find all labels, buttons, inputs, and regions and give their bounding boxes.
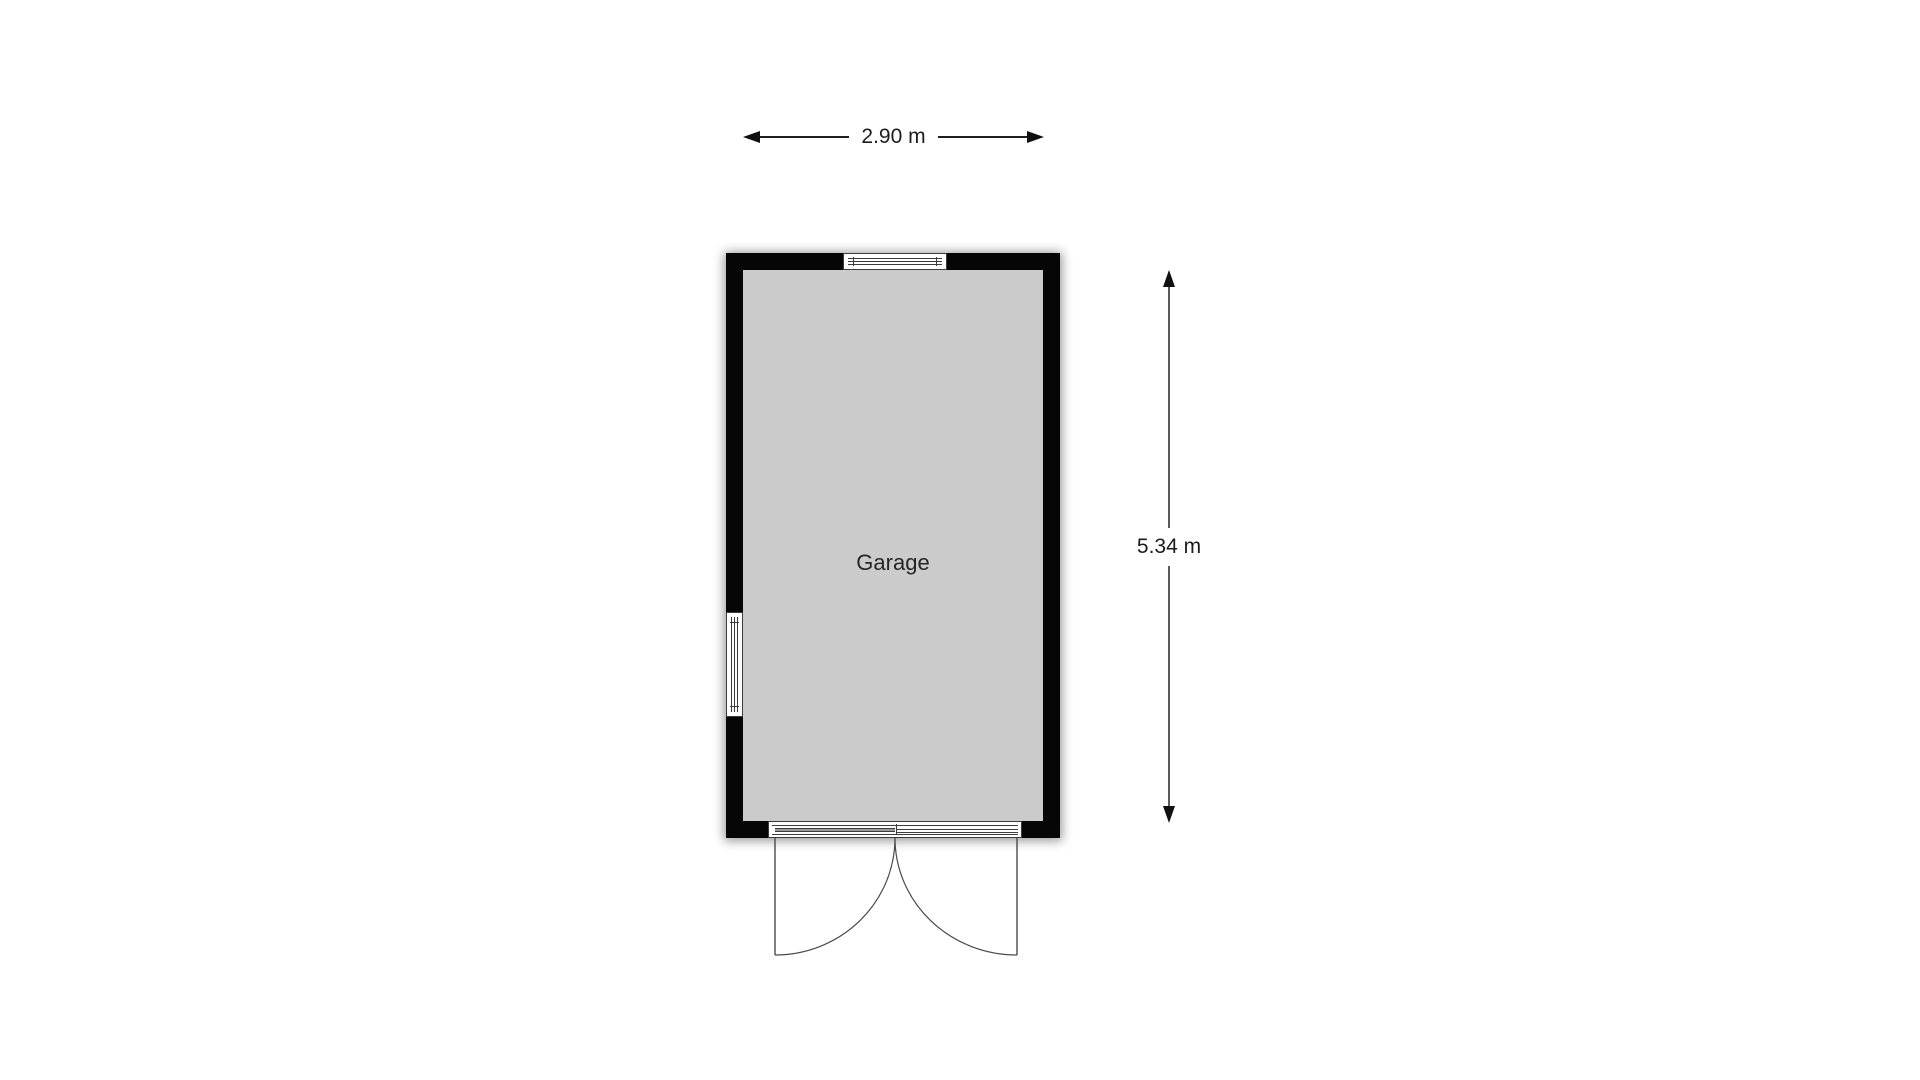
dimension-height: 5.34 m (1133, 270, 1205, 823)
room-label: Garage (743, 550, 1043, 576)
dimension-line-segment (1168, 287, 1170, 528)
window-frame-line (737, 617, 738, 712)
window-frame-line (731, 617, 732, 712)
floor-plan-page: 2.90 m Garage (0, 0, 1920, 1080)
threshold-center-divider (896, 824, 897, 835)
wall-right (1043, 253, 1060, 838)
dimension-line-segment (938, 136, 1027, 138)
window-frame-line (848, 258, 942, 259)
garage-double-door-swing (726, 838, 1060, 963)
threshold-line (897, 829, 1018, 830)
window-frame-cap (730, 706, 739, 707)
arrowhead-left-icon (743, 131, 760, 143)
door-threshold (768, 821, 1022, 838)
wall-left (726, 253, 743, 838)
arrowhead-right-icon (1027, 131, 1044, 143)
room-floor (743, 270, 1043, 821)
window-top (843, 253, 947, 270)
dimension-line-segment (1168, 566, 1170, 807)
window-frame-line (848, 264, 942, 265)
dimension-height-label: 5.34 m (1137, 528, 1201, 566)
window-left (726, 612, 743, 717)
door-swing-arc-left (775, 838, 895, 955)
threshold-line (772, 834, 1018, 835)
threshold-leaf-band (775, 828, 895, 832)
arrowhead-down-icon (1163, 806, 1175, 823)
dimension-line-segment (760, 136, 849, 138)
floor-plan: Garage (726, 253, 1060, 838)
window-frame-cap (853, 257, 854, 266)
window-frame-line (848, 261, 942, 262)
window-frame-cap (730, 622, 739, 623)
window-frame-line (734, 617, 735, 712)
dimension-width-label: 2.90 m (849, 126, 937, 148)
window-frame-cap (936, 257, 937, 266)
threshold-line (772, 825, 1018, 826)
threshold-line (897, 832, 1018, 833)
door-swing-arc-right (895, 838, 1017, 955)
arrowhead-up-icon (1163, 270, 1175, 287)
dimension-width: 2.90 m (743, 126, 1044, 148)
